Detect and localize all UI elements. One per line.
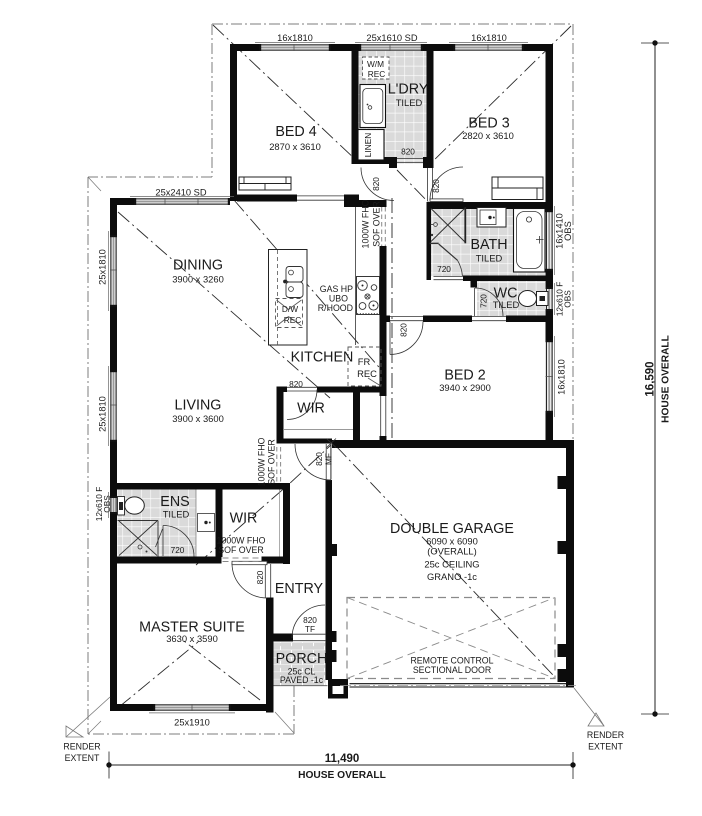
svg-text:GRANO -1c: GRANO -1c xyxy=(427,571,477,582)
svg-text:REC: REC xyxy=(284,315,302,325)
svg-text:TILED: TILED xyxy=(163,509,190,520)
svg-text:D/W: D/W xyxy=(282,304,298,314)
svg-text:SOF OVER: SOF OVER xyxy=(218,545,263,555)
svg-text:16,590: 16,590 xyxy=(645,361,657,396)
svg-text:1000W FHO: 1000W FHO xyxy=(217,536,266,546)
svg-text:25x1610 SD: 25x1610 SD xyxy=(366,33,417,43)
svg-text:16x1810: 16x1810 xyxy=(557,359,567,395)
svg-text:1000W FHO: 1000W FHO xyxy=(361,199,371,248)
svg-text:SOF OVER: SOF OVER xyxy=(372,201,382,246)
svg-text:PORCH: PORCH xyxy=(276,651,328,667)
svg-text:EXTENT: EXTENT xyxy=(65,753,100,763)
svg-text:TF: TF xyxy=(305,624,315,634)
svg-text:OBS: OBS xyxy=(563,221,573,241)
svg-text:MF: MF xyxy=(324,453,334,465)
svg-text:820: 820 xyxy=(289,379,303,389)
svg-text:WIR: WIR xyxy=(230,511,258,527)
svg-text:11,490: 11,490 xyxy=(325,753,360,765)
svg-text:3630 x 3590: 3630 x 3590 xyxy=(166,633,218,644)
svg-text:25c CEILING: 25c CEILING xyxy=(424,559,479,570)
svg-text:2820 x 3610: 2820 x 3610 xyxy=(462,130,514,141)
svg-text:ENTRY: ENTRY xyxy=(275,581,324,597)
svg-text:R/HOOD: R/HOOD xyxy=(318,303,353,313)
svg-text:HOUSE OVERALL: HOUSE OVERALL xyxy=(298,770,386,781)
svg-text:820: 820 xyxy=(401,147,415,157)
svg-text:25x1910: 25x1910 xyxy=(174,718,210,728)
svg-text:RENDER: RENDER xyxy=(587,730,624,740)
svg-text:(OVERALL): (OVERALL) xyxy=(427,546,477,557)
svg-text:820: 820 xyxy=(431,179,441,193)
svg-text:720: 720 xyxy=(171,545,185,555)
svg-text:BED 4: BED 4 xyxy=(275,124,316,140)
svg-text:3900 x 3600: 3900 x 3600 xyxy=(172,413,224,424)
svg-text:25x2410 SD: 25x2410 SD xyxy=(155,188,206,198)
svg-text:25x1810: 25x1810 xyxy=(98,396,108,432)
svg-text:1000W FHO: 1000W FHO xyxy=(257,437,267,486)
svg-text:REC: REC xyxy=(368,69,386,79)
svg-text:16x1810: 16x1810 xyxy=(471,33,507,43)
svg-text:PAVED -1c: PAVED -1c xyxy=(280,675,324,685)
svg-text:KITCHEN: KITCHEN xyxy=(291,350,354,366)
svg-text:3940 x 2900: 3940 x 2900 xyxy=(439,382,491,393)
svg-text:HOUSE OVERALL: HOUSE OVERALL xyxy=(661,335,672,423)
svg-text:720: 720 xyxy=(479,294,489,308)
svg-text:EXTENT: EXTENT xyxy=(588,742,623,752)
svg-text:WIR: WIR xyxy=(297,401,325,417)
svg-text:820: 820 xyxy=(399,323,409,337)
svg-text:RENDER: RENDER xyxy=(63,742,100,752)
svg-text:W/M: W/M xyxy=(367,59,384,69)
svg-text:TILED: TILED xyxy=(493,299,520,310)
svg-text:BATH: BATH xyxy=(470,237,507,253)
svg-text:LIVING: LIVING xyxy=(175,398,222,414)
svg-text:OBS: OBS xyxy=(102,495,112,513)
svg-text:820: 820 xyxy=(371,177,381,191)
svg-text:OBS: OBS xyxy=(563,290,573,308)
svg-text:UBO: UBO xyxy=(329,294,348,304)
svg-text:820: 820 xyxy=(314,452,324,466)
svg-text:TILED: TILED xyxy=(396,97,423,108)
svg-text:LINEN: LINEN xyxy=(363,133,373,157)
svg-text:L'DRY: L'DRY xyxy=(388,82,429,98)
svg-text:820: 820 xyxy=(255,570,265,584)
svg-text:DINING: DINING xyxy=(173,258,223,274)
svg-text:25x1810: 25x1810 xyxy=(98,249,108,285)
svg-text:2870 x 3610: 2870 x 3610 xyxy=(269,141,321,152)
svg-text:SECTIONAL DOOR: SECTIONAL DOOR xyxy=(413,665,491,675)
svg-text:16x1810: 16x1810 xyxy=(277,33,313,43)
svg-text:3900 x 3260: 3900 x 3260 xyxy=(172,274,224,285)
svg-text:REMOTE CONTROL: REMOTE CONTROL xyxy=(410,656,493,666)
svg-text:SOF OVER: SOF OVER xyxy=(267,439,277,484)
svg-text:REC: REC xyxy=(357,368,377,379)
svg-text:TILED: TILED xyxy=(476,253,503,264)
svg-text:GAS HP: GAS HP xyxy=(320,284,353,294)
svg-text:FR: FR xyxy=(358,356,371,367)
svg-text:720: 720 xyxy=(437,264,451,274)
